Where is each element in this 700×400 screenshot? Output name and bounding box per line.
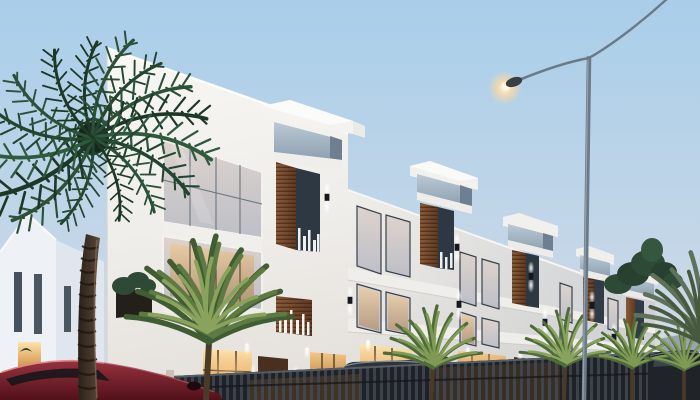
architectural-render-image: Dusk architectural rendering of a modern… <box>0 0 700 400</box>
house-window-slit <box>14 272 22 332</box>
house-window-slit <box>34 274 42 334</box>
render-canvas: Dusk architectural rendering of a modern… <box>0 0 700 400</box>
